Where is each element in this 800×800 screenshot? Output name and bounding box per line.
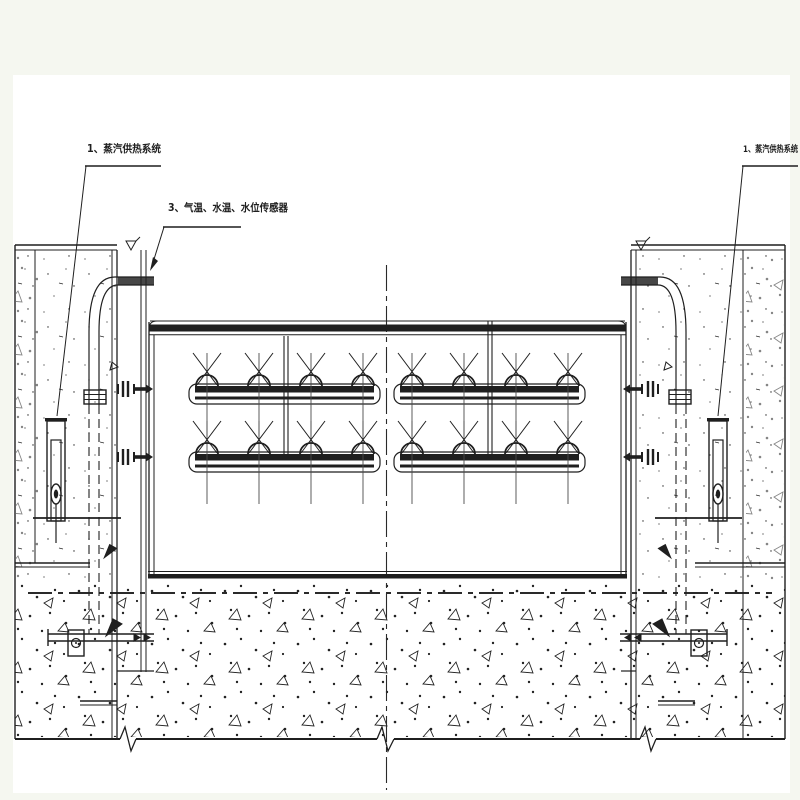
top-chord (149, 325, 626, 332)
label-steam-supply-right: 1、蒸汽供热系统 (743, 143, 798, 155)
label-steam-supply-left: 1、蒸汽供热系统 (87, 142, 161, 155)
sensor-conduit (621, 277, 658, 285)
drawing-canvas: 1、蒸汽供热系统 3、气温、水温、水位传感器 1、蒸汽供热系统 (0, 0, 800, 800)
cad-drawing: 1、蒸汽供热系统 3、气温、水温、水位传感器 1、蒸汽供热系统 (0, 0, 800, 800)
label-sensors: 3、气温、水温、水位传感器 (168, 201, 288, 214)
sensor-conduit (118, 277, 154, 285)
